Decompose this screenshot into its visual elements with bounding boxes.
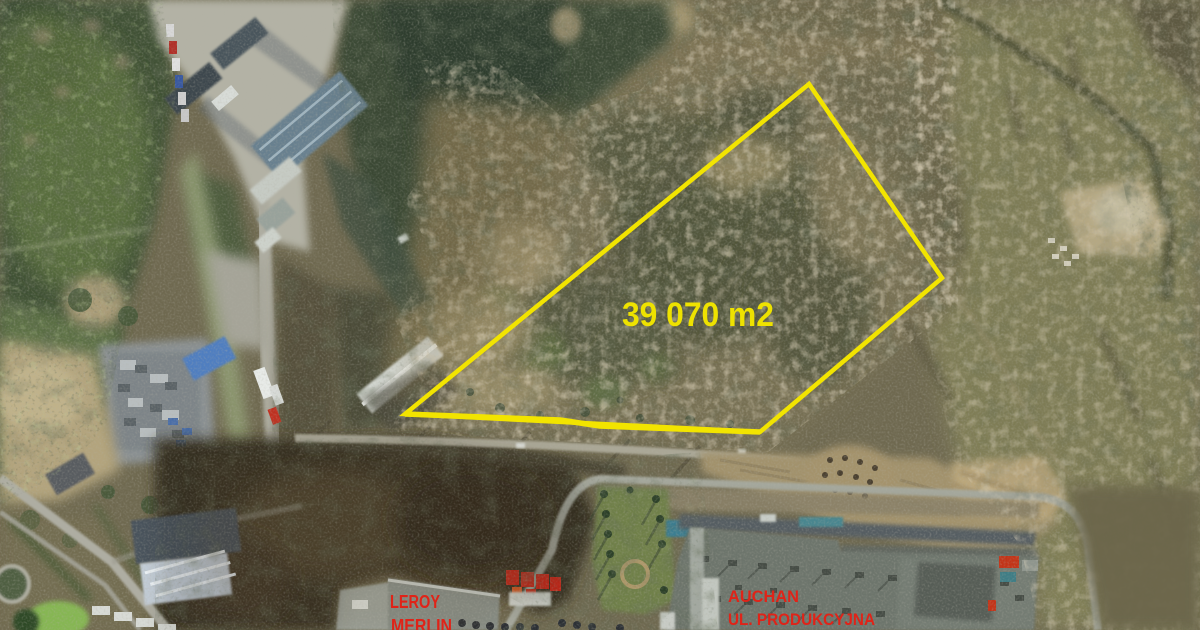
svg-text:39 070 m2: 39 070 m2 [622, 296, 774, 334]
svg-text:AUCHAN: AUCHAN [728, 588, 799, 606]
svg-text:LEROY: LEROY [390, 591, 441, 612]
svg-text:MERLIN: MERLIN [391, 615, 452, 630]
svg-text:UL. PRODUKCYJNA: UL. PRODUKCYJNA [728, 611, 875, 629]
